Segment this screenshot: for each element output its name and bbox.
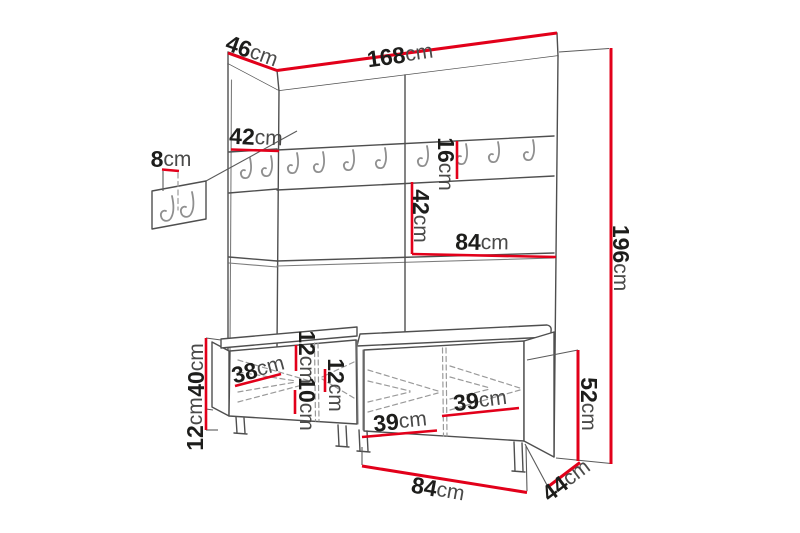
diagram-page: 168cm 46cm 42cm 8cm 196cm 16cm 42cm 84cm… xyxy=(0,0,800,533)
dim-column-width-label: 42cm xyxy=(229,123,284,152)
dimension-line-column-width xyxy=(231,150,279,152)
dim-bench-top-gap-label: 12cm xyxy=(294,330,320,384)
dim-bench-bottom-gap-label: 10cm xyxy=(294,377,320,431)
dim-mid-height-label: 42cm xyxy=(408,189,434,243)
dim-mid-width-label: 84cm xyxy=(455,229,509,256)
dim-bench-middle-gap-label: 12cm xyxy=(323,358,349,412)
furniture-dimension-diagram: 168cm 46cm 42cm 8cm 196cm 16cm 42cm 84cm… xyxy=(0,0,800,533)
dim-bench-height-label: 52cm xyxy=(576,377,602,431)
dim-seat-height-label: 40cm xyxy=(183,343,209,397)
dim-plinth-height-label: 12cm xyxy=(182,397,208,451)
dim-bench-width-label: 84cm xyxy=(409,472,466,507)
dim-hook-rail-label: 16cm xyxy=(433,137,459,191)
dim-wall-panel-label: 8cm xyxy=(151,146,192,172)
dim-total-height-label: 196cm xyxy=(608,225,634,291)
